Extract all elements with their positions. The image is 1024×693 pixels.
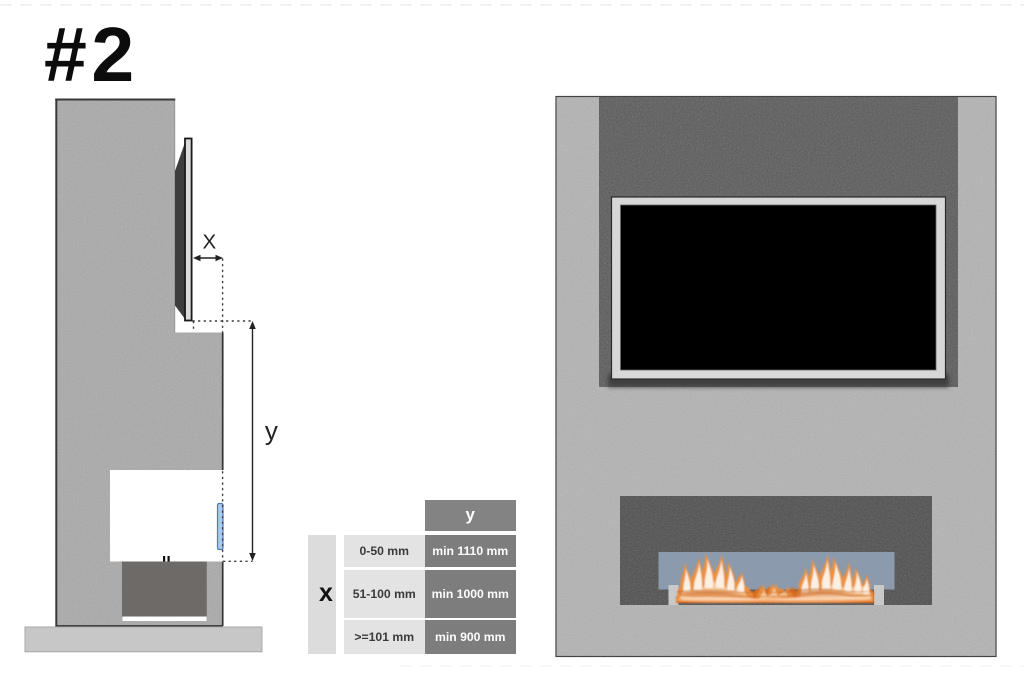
svg-text:X: X — [202, 231, 216, 254]
svg-text:y: y — [265, 416, 278, 446]
